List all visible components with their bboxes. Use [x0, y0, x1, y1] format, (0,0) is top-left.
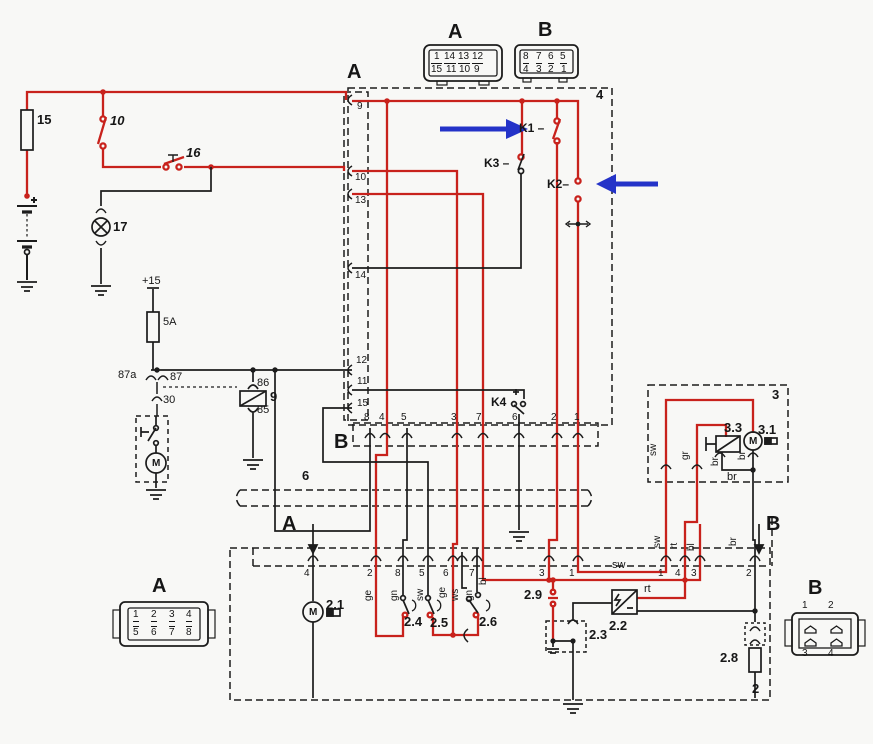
dashed-boxes	[136, 88, 788, 700]
wire-color-br: br	[727, 472, 737, 483]
cu-pin-a10: 10	[355, 173, 366, 183]
row-pin: 3	[691, 569, 697, 579]
top-connector-b-title: B	[538, 20, 552, 40]
cu-connector-a-label: A	[347, 62, 361, 82]
motor-2-1-label: 2.1	[326, 598, 344, 611]
marker-b-down: B	[766, 514, 780, 534]
cu-pin-b4: 4	[379, 413, 385, 423]
wire-color-sw: sw	[416, 589, 426, 601]
switch-10-label: 10	[110, 114, 124, 127]
cu-pin-b1: 1	[574, 413, 580, 423]
band-6-end-arcs	[237, 490, 592, 506]
cu-pin-a15: 15	[357, 399, 368, 409]
comp-2-2-label: 2.2	[609, 619, 627, 632]
cu-pin-b2: 2	[551, 413, 557, 423]
relay-30-label: 30	[163, 395, 175, 406]
bot-a-pin: 3	[169, 610, 175, 622]
motor-3-1-label: 3.1	[758, 423, 776, 436]
cu-pin-a12: 12	[356, 356, 367, 366]
wire-color-ge: ge	[438, 587, 448, 598]
fuse-5a-symbol	[147, 312, 159, 342]
wire-link-rt: rt	[644, 584, 651, 595]
cu-pin-a9: 9	[357, 102, 363, 112]
wire-color-bl: bl	[479, 577, 489, 585]
top-b-pin: 3	[536, 63, 542, 75]
top-a-pin: 10	[459, 63, 470, 75]
cu-pin-a11: 11	[357, 377, 367, 387]
relay-85-label: 85	[257, 405, 269, 416]
wire-color-rt: rt	[670, 543, 680, 549]
wire-color-sw: sw	[649, 444, 659, 456]
comp-2-9-label: 2.9	[524, 588, 542, 601]
top-b-pin: 2	[548, 63, 554, 75]
switch-16-label: 16	[186, 146, 200, 159]
cu-pin-b3: 3	[451, 413, 457, 423]
top-b-pin: 1	[561, 63, 567, 75]
band-6-lines	[240, 490, 588, 506]
row-pin: 8	[395, 569, 401, 579]
wire-link-sw: sw	[612, 560, 625, 571]
wire-color-br: br	[729, 537, 739, 546]
band-6-label: 6	[302, 469, 309, 482]
cu-pin-a14: 14	[355, 271, 366, 281]
top-a-pin: 9	[474, 63, 480, 75]
relay-k4-label: K4	[491, 396, 506, 408]
top-a-pin: 15	[431, 63, 442, 75]
relay-k3-label: K3 –	[484, 157, 509, 169]
wire-color-gn: gn	[390, 590, 400, 601]
lamp-17-label: 17	[113, 220, 127, 233]
fuse-15-label: 15	[37, 113, 51, 126]
relay-9-label: 9	[270, 390, 277, 403]
row-pin: 2	[367, 569, 373, 579]
row-pin: 3	[539, 569, 545, 579]
ground-k4	[509, 532, 529, 541]
row-pin: 2	[746, 569, 752, 579]
cu-pin-b6: 6	[512, 413, 518, 423]
box-3-label: 3	[772, 388, 779, 401]
cu-connector-b-label: B	[334, 432, 348, 452]
switch-actuators	[412, 600, 490, 611]
fuse-5a-label: 5A	[163, 317, 176, 328]
wire-color-ge: ge	[364, 590, 374, 601]
ground-2-3	[563, 704, 583, 713]
top-b-pin: 4	[523, 63, 529, 75]
top-a-pin: 11	[446, 63, 456, 75]
black-wires	[17, 154, 777, 713]
wire-color-br: br	[738, 451, 748, 460]
marker-a-down: A	[282, 514, 296, 534]
row-pin: 7	[469, 569, 475, 579]
bot-a-pin: 4	[186, 610, 192, 622]
red-wires	[27, 92, 753, 641]
wire-color-ws: ws	[451, 589, 461, 601]
bot-a-pin: 8	[186, 626, 192, 638]
blue-arrow-k2	[596, 174, 658, 194]
wire-color-gr: gr	[681, 451, 691, 460]
box-2-outline	[230, 548, 770, 700]
bot-b-pin: 2	[828, 601, 834, 611]
fuse-2-8-symbol	[749, 648, 761, 672]
comp-2-8-arcs	[750, 627, 760, 644]
bot-a-pin: 2	[151, 610, 157, 622]
bot-a-pin: 1	[133, 610, 139, 622]
cu-pin-a13: 13	[355, 196, 366, 206]
switch-2-6-label: 2.6	[479, 615, 497, 628]
bot-a-pin: 7	[169, 626, 175, 638]
ground-relay	[243, 460, 263, 469]
connector-b-strip	[353, 423, 598, 446]
wire-color-bl: bl	[687, 543, 697, 551]
ground-battery	[17, 282, 37, 291]
fuse-2-8-label: 2.8	[720, 651, 738, 664]
control-unit-label: 4	[596, 88, 603, 101]
top-connector-a-title: A	[448, 22, 462, 42]
relay-k1-label: K1 –	[519, 122, 544, 134]
wire-color-sw: sw	[653, 536, 663, 548]
relay-86-label: 86	[257, 378, 269, 389]
relay-87-label: 87	[170, 372, 182, 383]
bottom-connector-a-title: A	[152, 576, 166, 596]
fuse-15-symbol	[21, 110, 33, 150]
row-pin: 1	[569, 569, 575, 579]
row-pin: 4	[304, 569, 310, 579]
relay-k2-label: K2–	[547, 178, 569, 190]
wiring-diagram: A B 1 14 13 12 15 11 10 9 8 7 6 5 4 3 2 …	[0, 0, 873, 744]
valve-3-3-label: 3.3	[724, 421, 742, 434]
bot-b-pin: 4	[828, 649, 834, 659]
box-2-label: 2	[752, 682, 759, 695]
battery-symbol	[17, 197, 37, 280]
switch-2-4-label: 2.4	[404, 615, 422, 628]
ignition-feed	[151, 289, 352, 370]
blue-arrow-k1	[440, 119, 528, 139]
motor-3-1-letter: M	[749, 437, 757, 447]
comp-2-3-label: 2.3	[589, 628, 607, 641]
row-pin: 5	[419, 569, 425, 579]
bot-a-pin: 6	[151, 626, 157, 638]
valve-3-3-attach	[706, 437, 716, 451]
cu-pin-b5: 5	[401, 413, 407, 423]
ground-lamp	[91, 286, 111, 295]
bot-a-pin: 5	[133, 626, 139, 638]
row-pin: 1	[658, 569, 664, 579]
cu-pin-b8: 8	[364, 413, 370, 423]
bot-b-pin: 3	[802, 649, 808, 659]
relay-motor-letter: M	[152, 459, 160, 469]
wire-color-br: br	[711, 457, 721, 466]
terminal-15-label: +15	[142, 276, 161, 287]
row-pin: 4	[675, 569, 681, 579]
wire-color-gn: gn	[465, 590, 475, 601]
relay-87a-label: 87a	[118, 370, 136, 381]
k4-branch	[352, 389, 524, 530]
switch-2-5-label: 2.5	[430, 616, 448, 629]
ground-relay-motor	[146, 490, 166, 499]
bottom-connector-b-title: B	[808, 578, 822, 598]
b5-link	[403, 428, 407, 596]
bot-b-pin: 1	[802, 601, 808, 611]
row-pin: 6	[443, 569, 449, 579]
motor-2-1-letter: M	[309, 608, 317, 618]
lower-strip-line	[253, 518, 772, 566]
cu-pin-b7: 7	[476, 413, 482, 423]
